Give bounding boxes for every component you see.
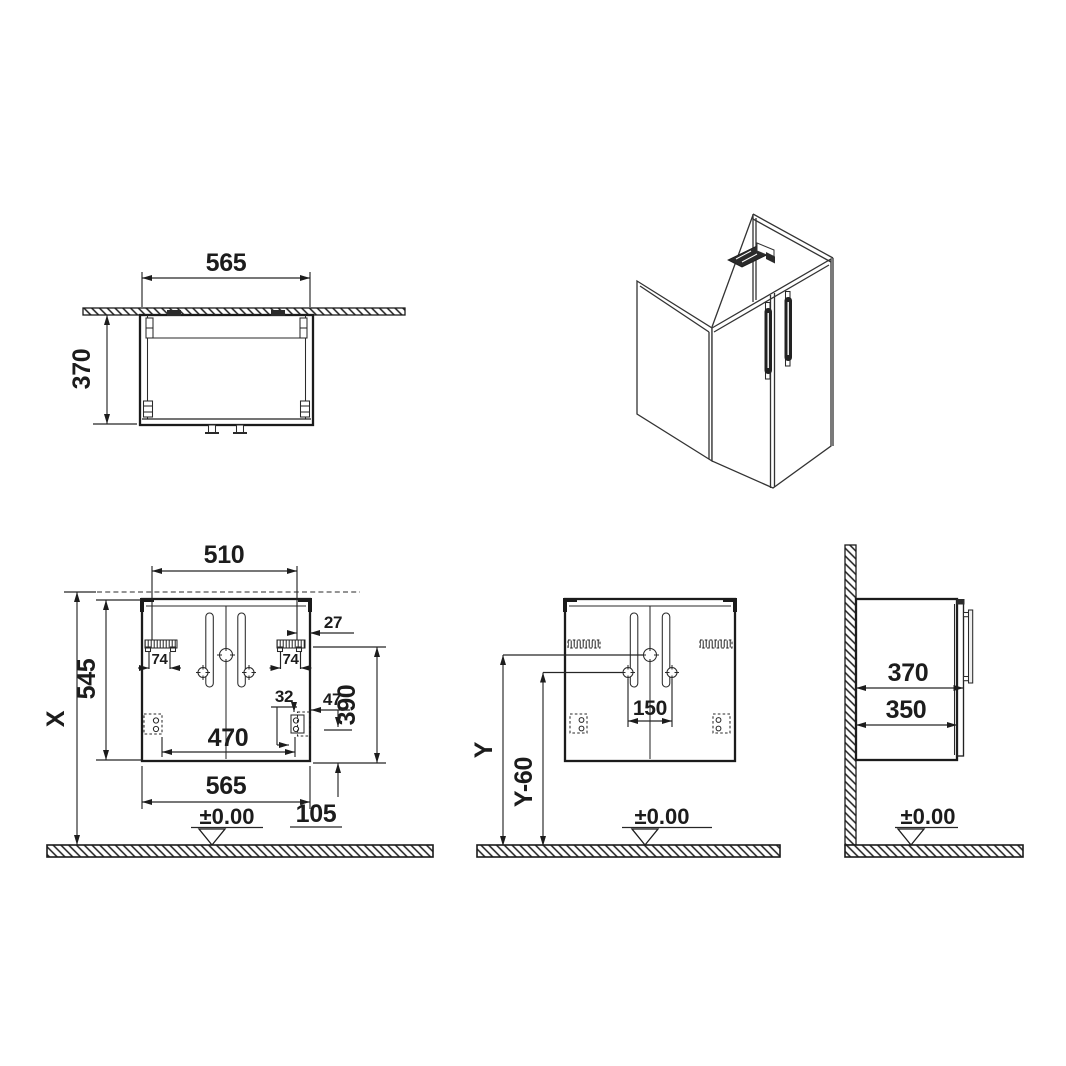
dim-label-150: 150 — [633, 697, 667, 720]
vanity-unit-drawing: 565 370 — [0, 0, 1066, 1066]
dim-hanger-pitch: 510 — [152, 541, 297, 640]
dim-label-510: 510 — [204, 541, 245, 569]
door-top-cap — [957, 599, 965, 605]
side-view: 370 350 ±0.00 — [845, 545, 1023, 857]
datum-label-middle: ±0.00 — [635, 804, 690, 829]
dim-label-top-370: 370 — [68, 349, 96, 390]
dim-label-565-bottom: 565 — [206, 772, 247, 800]
cabinet-plan-outline — [140, 315, 313, 425]
dim-label-side-350: 350 — [886, 696, 927, 724]
dim-label-74-left: 74 — [151, 651, 168, 668]
dim-top-depth: 370 — [68, 315, 137, 424]
datum-label-right: ±0.00 — [901, 804, 956, 829]
wall-bracket-left — [167, 310, 181, 316]
wall-bracket-right — [271, 310, 285, 316]
iso-mounting-bracket — [728, 243, 775, 267]
floor-hatch-right — [845, 845, 1023, 857]
dim-label-105: 105 — [296, 800, 337, 828]
isometric-view — [637, 214, 833, 488]
dim-label-27: 27 — [324, 613, 342, 632]
dim-total-height: X — [42, 592, 96, 845]
dim-label-top-565: 565 — [206, 249, 247, 277]
datum-triangle-icon — [898, 829, 924, 845]
dim-mount-height-y: Y — [470, 655, 643, 846]
floor-hatch-left — [47, 845, 433, 857]
dim-label-545: 545 — [73, 658, 101, 699]
datum-triangle-icon — [632, 829, 658, 845]
floor-datum-left: ±0.00 — [191, 804, 263, 845]
technical-drawing-page: 565 370 — [0, 0, 1066, 1066]
dim-carcass-width: 565 — [142, 766, 310, 809]
dim-edge-offset: 27 — [288, 613, 354, 633]
rear-view: 510 X 545 74 74 27 — [42, 541, 433, 857]
dim-fixing-width: 32 — [271, 687, 297, 745]
dim-label-y-60: Y-60 — [510, 757, 538, 807]
handle-side-profile — [964, 610, 973, 683]
dim-bottom-offset: 105 — [290, 763, 342, 828]
dim-label-32: 32 — [275, 687, 293, 706]
dim-top-width: 565 — [142, 249, 310, 307]
dim-label-74-right: 74 — [282, 651, 299, 668]
iso-left-panel — [637, 281, 712, 461]
dim-carcass-depth: 350 — [856, 696, 957, 725]
dim-depth-overall: 370 — [856, 659, 964, 688]
dim-label-y: Y — [470, 741, 498, 758]
datum-triangle-icon — [199, 829, 225, 845]
dim-carcass-height: 545 — [73, 600, 141, 760]
dim-bottom-pitch: 470 — [162, 724, 295, 757]
dim-label-47: 47 — [323, 690, 341, 709]
datum-label-left: ±0.00 — [200, 804, 255, 829]
dim-label-side-370: 370 — [888, 659, 929, 687]
floor-datum-right: ±0.00 — [895, 804, 958, 845]
corner-hardware — [144, 318, 310, 417]
dim-label-x: X — [42, 710, 70, 727]
iso-door-face — [712, 259, 831, 488]
top-view: 565 370 — [68, 249, 405, 433]
dim-label-470: 470 — [208, 724, 249, 752]
wall-hatch-right — [845, 545, 856, 845]
handle-slot-right — [238, 613, 246, 687]
floor-datum-middle: ±0.00 — [622, 804, 712, 845]
front-view: 150 Y Y-60 ±0.00 — [470, 599, 780, 857]
handle-stubs — [205, 425, 247, 433]
floor-hatch-middle — [477, 845, 780, 857]
